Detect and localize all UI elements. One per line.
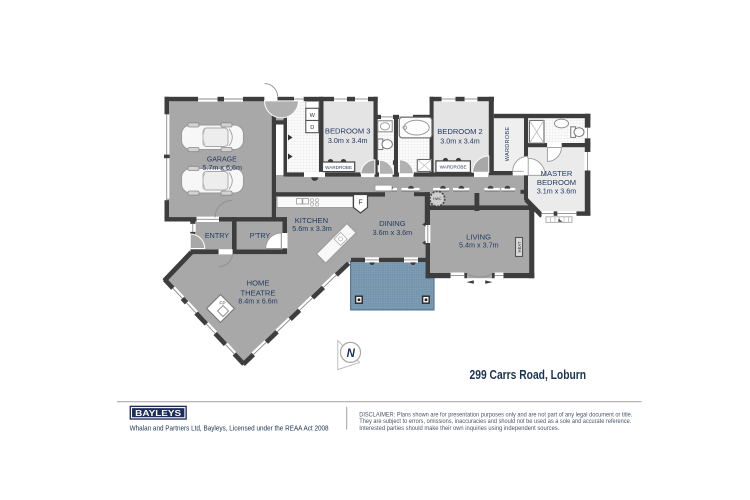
svg-text:5.7m x 6.6m: 5.7m x 6.6m xyxy=(202,163,242,172)
svg-text:P'TRY: P'TRY xyxy=(250,231,271,240)
svg-text:HWC: HWC xyxy=(433,197,442,201)
svg-text:HOME: HOME xyxy=(247,279,270,288)
svg-text:8.4m x 6.6m: 8.4m x 6.6m xyxy=(238,297,278,306)
svg-text:WARDROBE: WARDROBE xyxy=(505,127,511,162)
svg-text:MASTER: MASTER xyxy=(541,169,573,178)
svg-text:D: D xyxy=(310,125,314,131)
svg-text:DINING: DINING xyxy=(379,219,406,228)
svg-text:BEDROOM 3: BEDROOM 3 xyxy=(325,127,371,136)
svg-text:BEDROOM 2: BEDROOM 2 xyxy=(437,127,483,136)
svg-text:299 Carrs Road, Loburn: 299 Carrs Road, Loburn xyxy=(470,367,587,382)
svg-text:Whalan and Partners Ltd, Bayle: Whalan and Partners Ltd, Bayleys, Licens… xyxy=(130,423,329,432)
svg-text:ENTRY: ENTRY xyxy=(205,231,229,240)
svg-text:WARDROBE: WARDROBE xyxy=(325,165,352,170)
svg-text:N: N xyxy=(347,348,356,360)
svg-text:5.6m x 3.3m: 5.6m x 3.3m xyxy=(292,224,332,233)
svg-text:3.1m x 3.6m: 3.1m x 3.6m xyxy=(537,187,577,196)
svg-text:WARDROBE: WARDROBE xyxy=(440,165,467,170)
svg-text:F: F xyxy=(358,199,362,206)
svg-text:BAYLEYS: BAYLEYS xyxy=(135,408,181,418)
svg-text:Interested parties should make: Interested parties should make their own… xyxy=(359,425,559,432)
svg-text:HEAT: HEAT xyxy=(517,241,522,252)
svg-text:3.6m x 3.6m: 3.6m x 3.6m xyxy=(373,228,413,237)
svg-text:3.0m x 3.4m: 3.0m x 3.4m xyxy=(440,137,480,146)
svg-text:FP: FP xyxy=(219,301,225,307)
svg-text:W: W xyxy=(310,113,316,119)
svg-text:5.4m x 3.7m: 5.4m x 3.7m xyxy=(459,240,499,249)
svg-text:3.0m x 3.4m: 3.0m x 3.4m xyxy=(328,136,368,145)
